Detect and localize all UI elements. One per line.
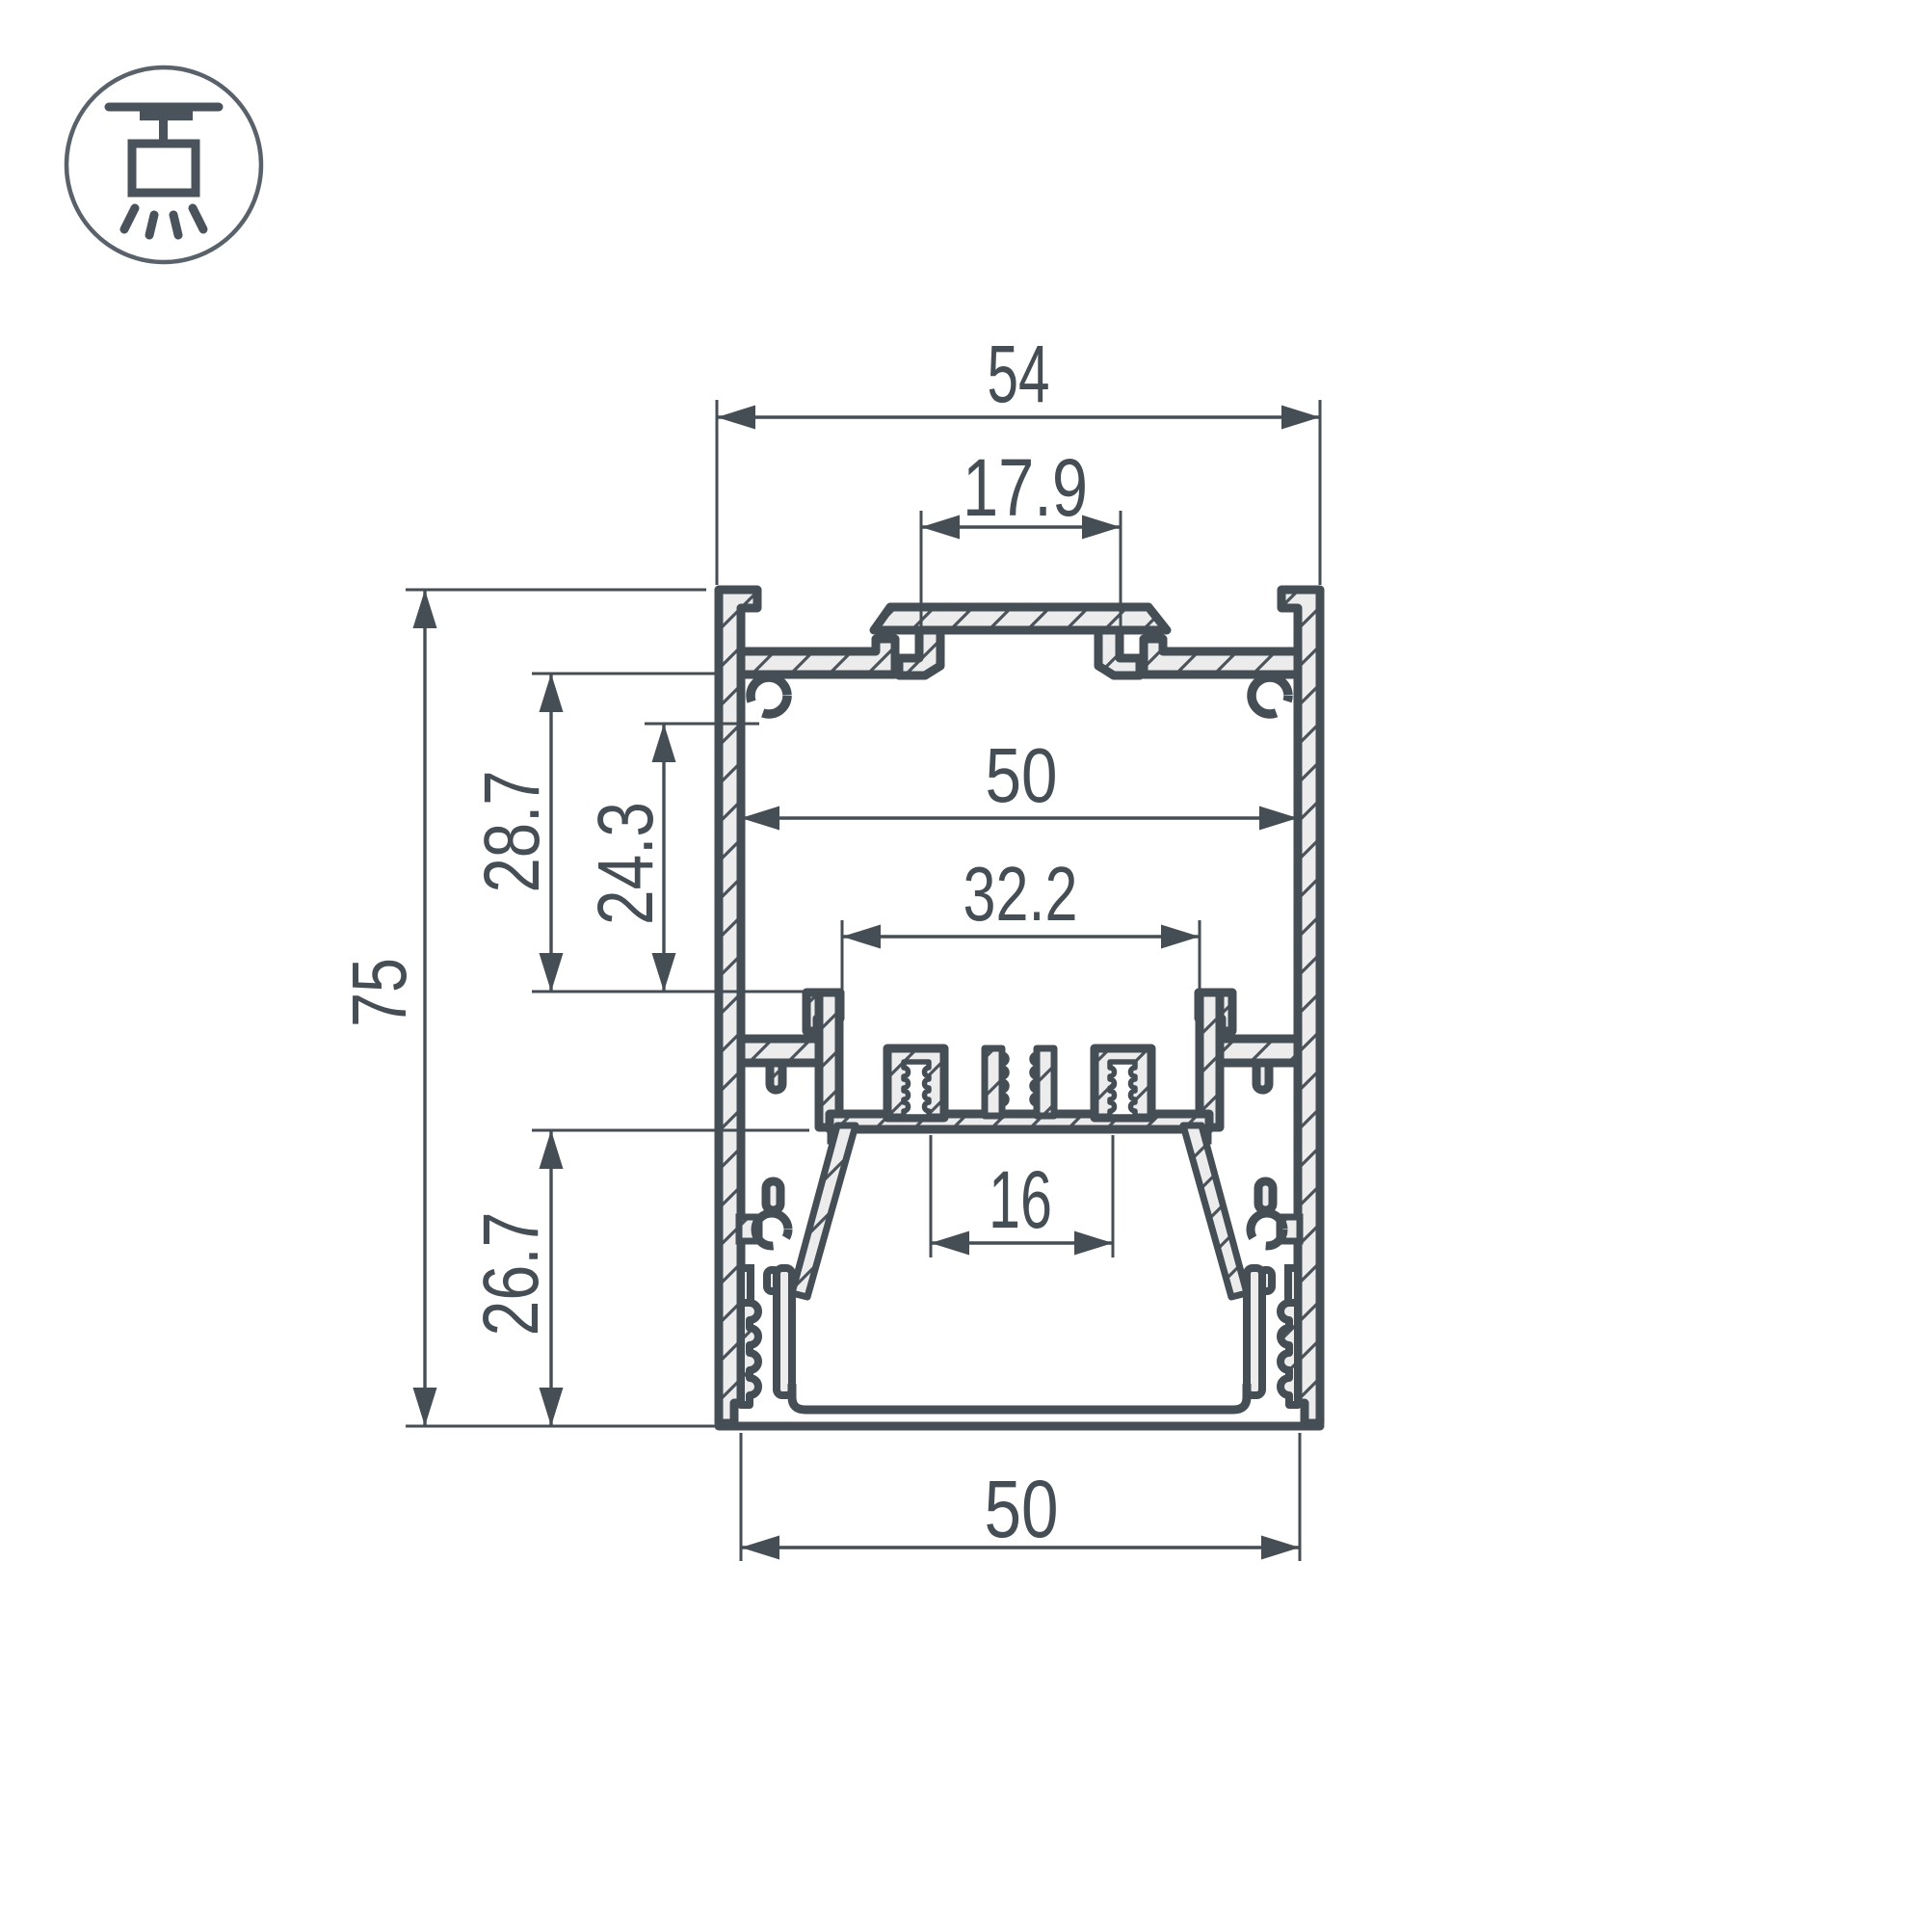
svg-text:50: 50 <box>985 1464 1059 1554</box>
svg-text:50: 50 <box>986 732 1058 818</box>
svg-text:32.2: 32.2 <box>963 851 1078 937</box>
svg-text:75: 75 <box>336 958 422 1027</box>
svg-text:54: 54 <box>988 329 1050 419</box>
svg-text:24.3: 24.3 <box>582 802 670 925</box>
svg-text:28.7: 28.7 <box>468 771 556 893</box>
svg-text:26.7: 26.7 <box>467 1212 555 1337</box>
svg-text:16: 16 <box>989 1154 1052 1245</box>
svg-text:17.9: 17.9 <box>963 442 1088 533</box>
